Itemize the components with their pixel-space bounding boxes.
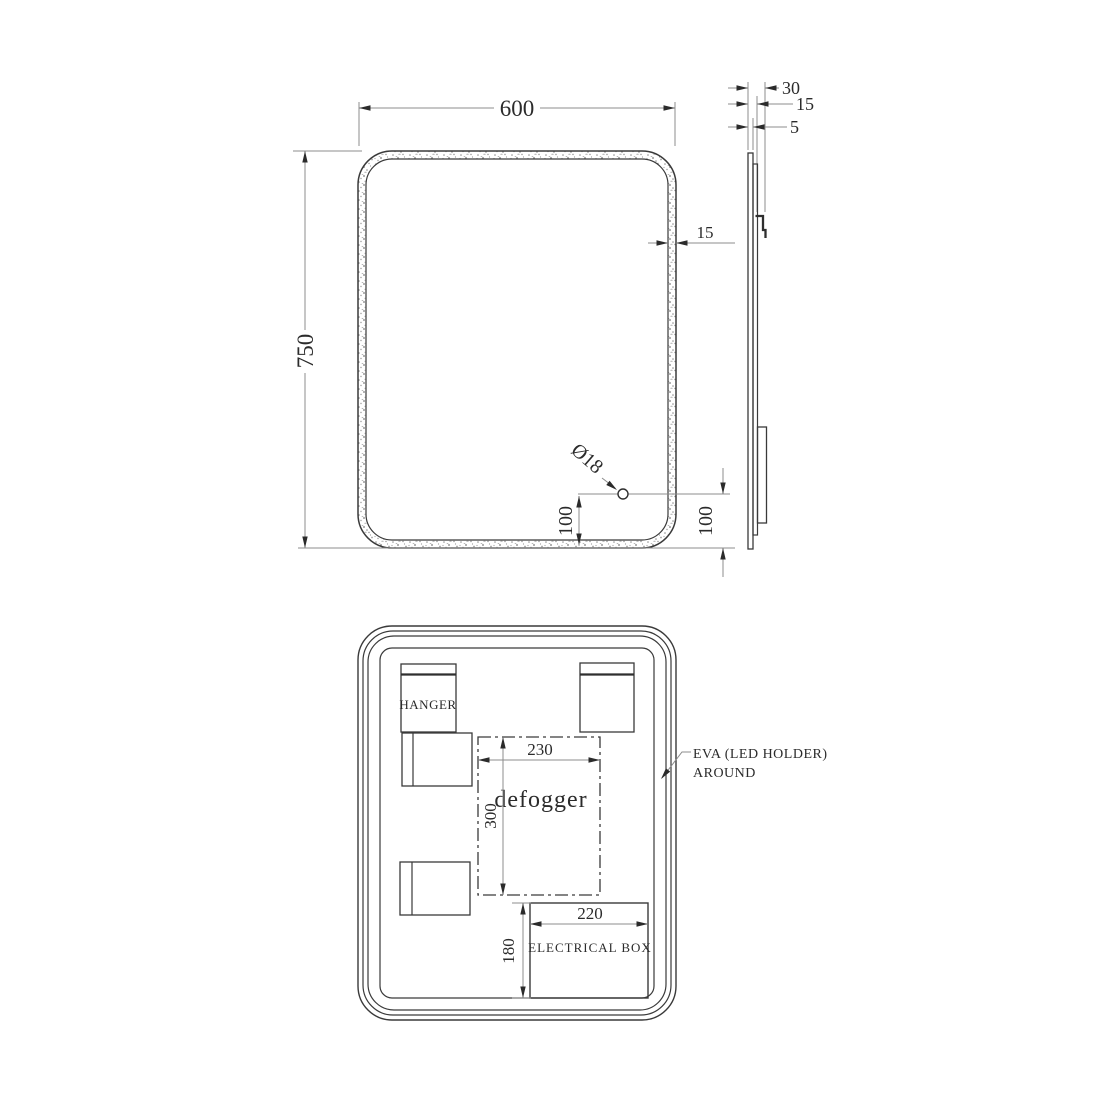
dim-glass-text: 5 [790, 117, 799, 137]
technical-drawing-page: 600 750 15 Ø18 [0, 0, 1100, 1100]
electrical-box-label: ELECTRICAL BOX [528, 940, 652, 955]
dim-bottom-offset-text: 100 [695, 506, 717, 536]
dim-box-height-text: 180 [499, 938, 518, 964]
eva-note-line2: AROUND [693, 766, 756, 781]
dim-hole-offset-text: 100 [555, 506, 577, 536]
dim-defogger-width-text: 230 [527, 740, 553, 759]
mirror-technical-drawing: 600 750 15 Ø18 [0, 0, 1100, 1100]
hole-circle [618, 489, 628, 499]
dim-height-text: 750 [293, 334, 318, 369]
mirror-face [358, 151, 676, 548]
eva-note-line1: EVA (LED HOLDER) [693, 747, 828, 762]
hanger-label: HANGER [399, 697, 456, 712]
dim-defogger-height-text: 300 [481, 803, 500, 829]
dim-box-width-text: 220 [577, 904, 603, 923]
dim-width-text: 600 [500, 96, 535, 121]
defogger-label: defogger [494, 787, 587, 813]
dim-border-text: 15 [697, 223, 714, 242]
dim-mid-depth-text: 15 [796, 94, 814, 114]
